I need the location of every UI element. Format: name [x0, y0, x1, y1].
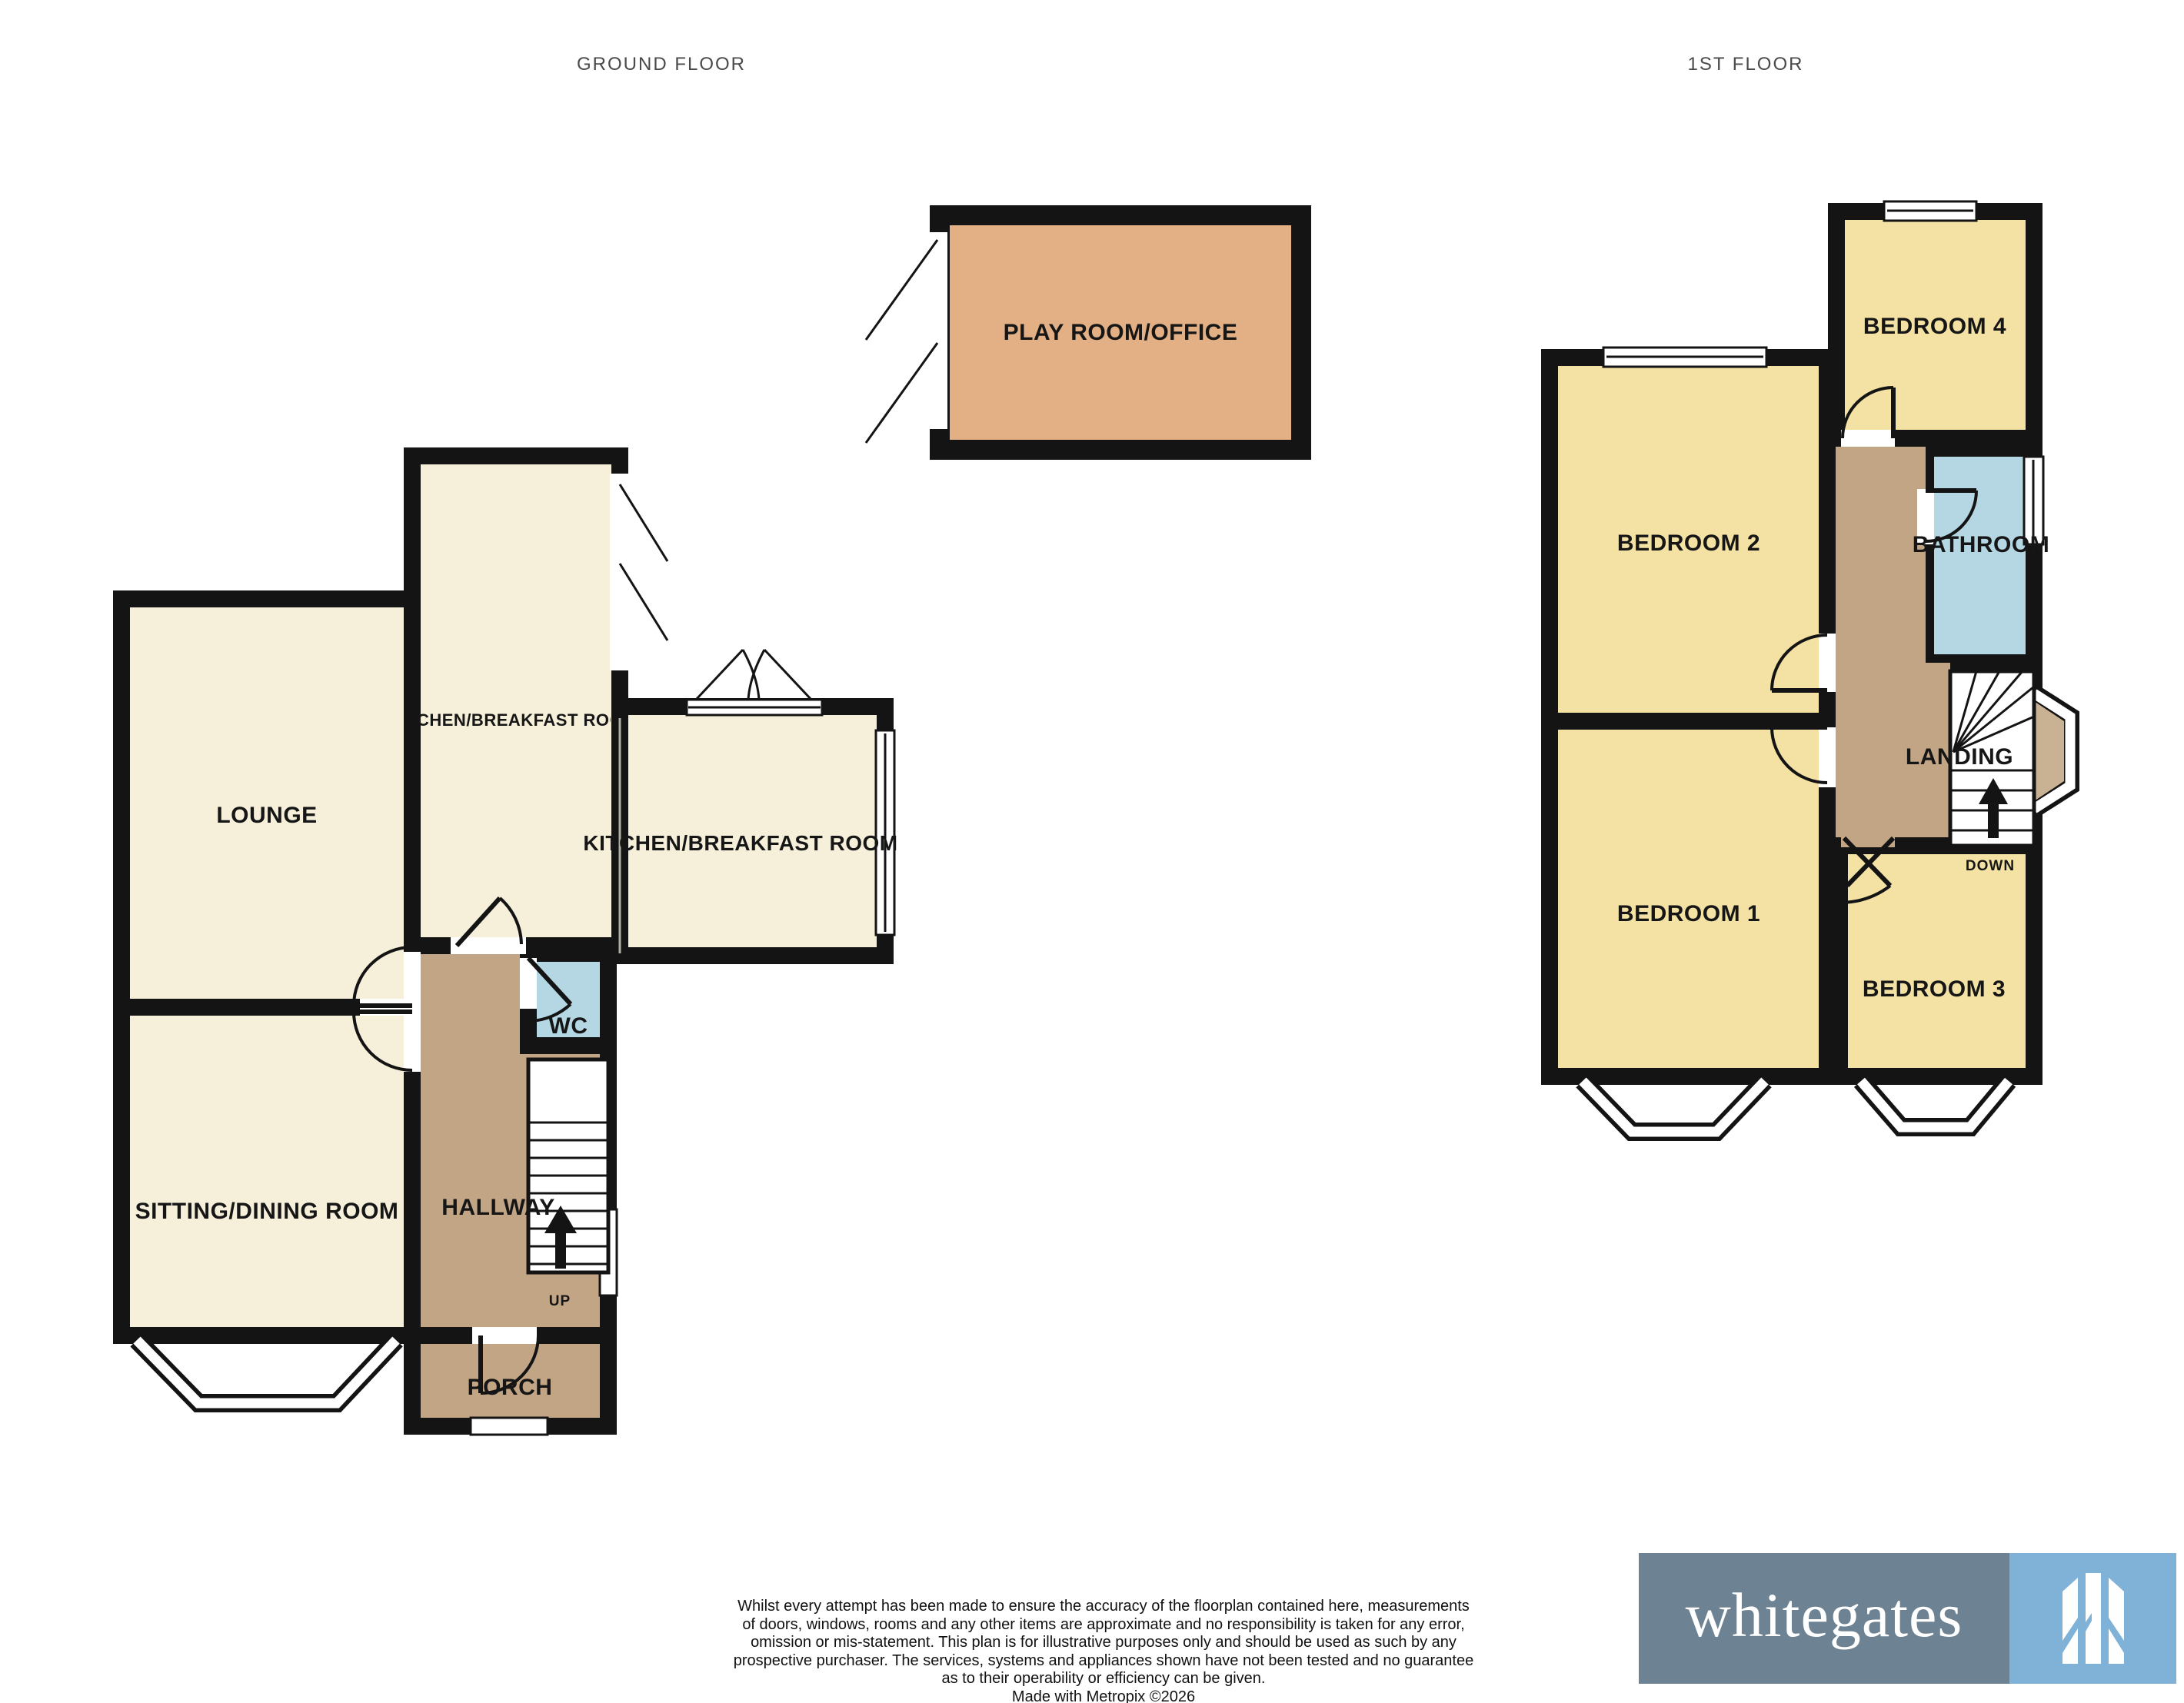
door-kitchen-french [696, 650, 811, 700]
bay-window-sitting [137, 1340, 396, 1403]
label-bathroom: BATHROOM [1913, 532, 2049, 557]
whitegates-logo: whitegates [1639, 1553, 2176, 1684]
label-landing: LANDING [1906, 744, 2013, 770]
label-wc: WC [549, 1013, 588, 1039]
opening-playroom [926, 232, 947, 429]
label-down: DOWN [1966, 858, 2015, 874]
staircase-ground [528, 1059, 608, 1272]
ground-floor-plan: LOUNGE SITTING/DINING ROOM KITCHEN/BREAK… [122, 456, 898, 1435]
label-kitchen-main: KITCHEN/BREAKFAST ROOM [583, 831, 897, 855]
label-play-room-office: PLAY ROOM/OFFICE [1004, 320, 1238, 345]
doorway-gap-bedroom1 [1819, 727, 1836, 787]
first-floor-plan: BEDROOM 2 BEDROOM 1 BEDROOM 4 BATHROOM L… [1550, 201, 2070, 1132]
logo-brand-text: whitegates [1686, 1584, 1963, 1653]
doorway-gap-bedroom2 [1819, 634, 1836, 692]
disclaimer-line: of doors, windows, rooms and any other i… [596, 1616, 1611, 1635]
bay-window-bedroom1 [1583, 1081, 1765, 1132]
label-sitting-dining: SITTING/DINING ROOM [135, 1199, 399, 1224]
room-bedroom-1 [1550, 721, 1827, 1076]
gate-icon [2052, 1573, 2135, 1664]
porch-threshold [471, 1418, 548, 1435]
logo-wordmark-panel: whitegates [1639, 1553, 2009, 1684]
label-bedroom-3: BEDROOM 3 [1863, 976, 2006, 1002]
floorplan-canvas: LOUNGE SITTING/DINING ROOM KITCHEN/BREAK… [0, 0, 2184, 1703]
bay-window-landing [2034, 694, 2070, 809]
opening-kitchen-wing-bifold [610, 474, 630, 670]
label-hallway: HALLWAY [441, 1195, 554, 1220]
play-room-plan: PLAY ROOM/OFFICE [866, 215, 1301, 450]
logo-icon-panel [2009, 1553, 2176, 1684]
label-up: UP [549, 1293, 571, 1309]
room-kitchen-wing [412, 456, 620, 946]
label-bedroom-2: BEDROOM 2 [1617, 531, 1760, 556]
doorway-gap-bedroom4 [1841, 430, 1895, 447]
disclaimer-text: Whilst every attempt has been made to en… [596, 1598, 1611, 1703]
disclaimer-line: as to their operability or efficiency ca… [596, 1670, 1611, 1688]
bay-window-bedroom3 [1861, 1081, 2009, 1127]
disclaimer-line: omission or mis-statement. This plan is … [596, 1634, 1611, 1652]
floorplan-page: GROUND FLOOR 1ST FLOOR [0, 0, 2184, 1703]
label-porch: PORCH [468, 1375, 553, 1400]
room-bedroom-3 [1839, 846, 2034, 1076]
label-bedroom-1: BEDROOM 1 [1617, 901, 1760, 926]
label-lounge: LOUNGE [216, 803, 317, 828]
room-sitting-dining [122, 1007, 412, 1335]
label-bedroom-4: BEDROOM 4 [1863, 314, 2006, 339]
disclaimer-line: Whilst every attempt has been made to en… [596, 1598, 1611, 1616]
disclaimer-metropix-line: Made with Metropix ©2026 [596, 1688, 1611, 1703]
label-kitchen-wing: KITCHEN/BREAKFAST ROOM [388, 710, 638, 730]
disclaimer-line: prospective purchaser. The services, sys… [596, 1652, 1611, 1671]
